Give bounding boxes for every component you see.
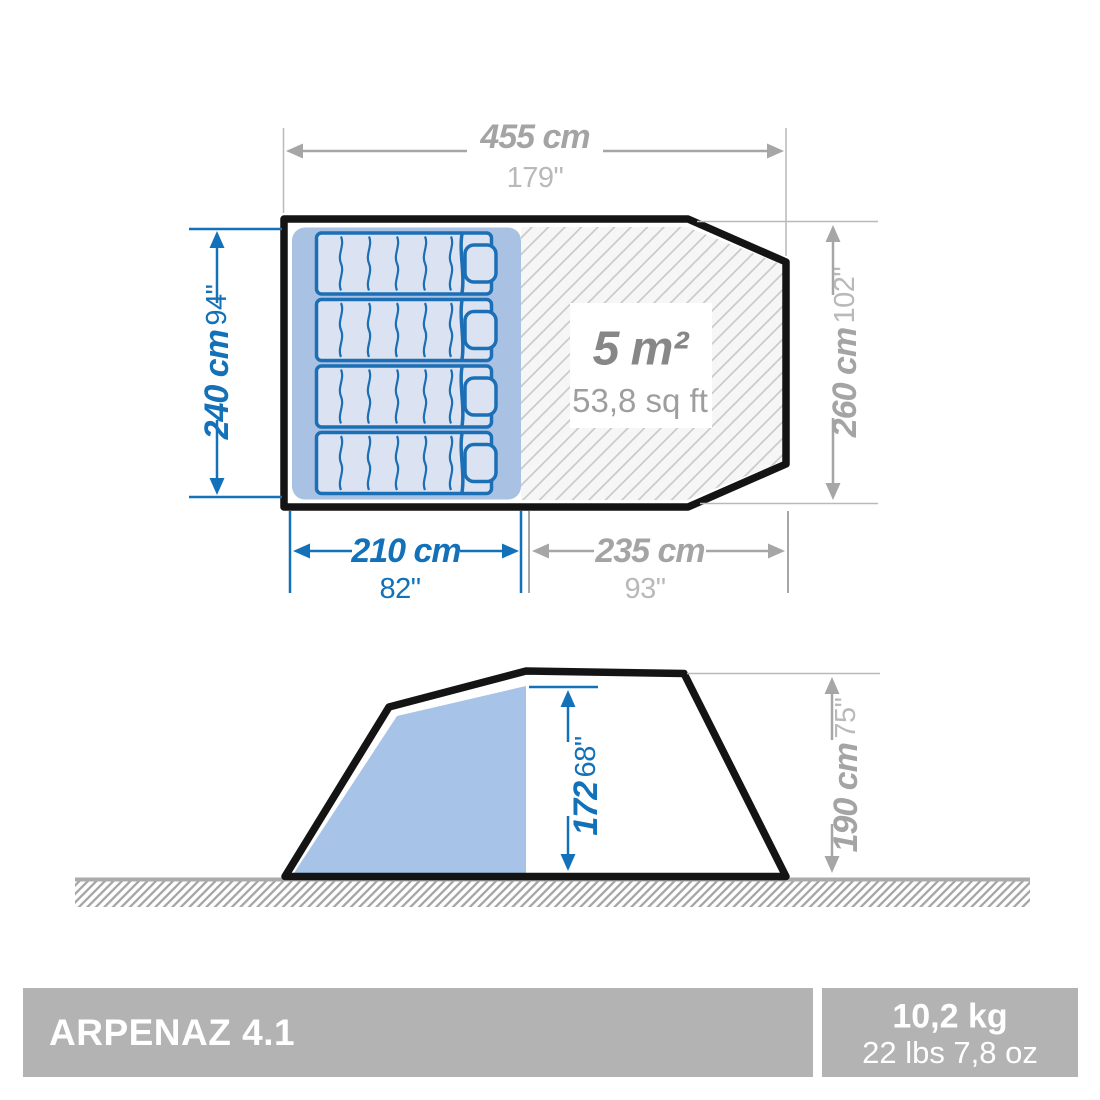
exterior-height-metric-label: 190 cm [828,743,864,852]
weight-lbs-label: 22 lbs 7,8 oz [862,1035,1038,1071]
mattress-2 [317,300,497,361]
interior-height-metric-label: 172 [568,782,604,836]
interior-height-imperial-label: 68" [570,736,602,777]
right-depth-imperial-label: 102" [829,267,861,324]
arrow-down-icon [210,478,225,495]
left-depth-label: 240 cm 94" [199,285,235,440]
weight-kg-label: 10,2 kg [892,998,1007,1037]
right-depth-metric-label: 260 cm [827,328,863,437]
living-width-imperial-label: 93" [624,573,665,605]
arrow-down-icon [826,483,841,500]
arrow-left-icon [532,544,549,559]
mattress-3 [317,366,497,427]
ground-hatch [75,882,1030,908]
arrow-left-icon [293,544,310,559]
arrow-up-icon [210,231,225,248]
exterior-height-label: 190 cm 75" [828,698,864,853]
model-name: ARPENAZ 4.1 [49,988,295,1077]
left-depth-imperial-label: 94" [201,285,233,326]
arrow-up-icon [826,225,841,242]
tent-dimensions-diagram: 455 cm 179" 240 cm 94" 260 cm 102" 210 c… [0,0,1100,1100]
exterior-height-imperial-label: 75" [830,698,862,739]
arrow-down-icon [825,856,840,873]
total-width-imperial-label: 179" [507,162,564,194]
arrow-up-icon [825,677,840,694]
right-depth-label: 260 cm 102" [827,267,863,437]
living-area-metric-label: 5 m² [593,322,688,377]
mattress-1 [317,233,497,294]
left-depth-metric-label: 240 cm [199,330,235,439]
side-sleeping-compartment [294,686,526,873]
living-area-imperial-label: 53,8 sq ft [572,382,708,420]
sleeping-width-metric-label: 210 cm [351,533,460,569]
total-width-metric-label: 455 cm [480,119,589,155]
interior-height-label: 172 68" [568,736,604,835]
mattress-4 [317,433,497,494]
arrow-right-icon [767,144,784,159]
living-width-metric-label: 235 cm [595,533,704,569]
arrow-right-icon [768,544,785,559]
arrow-right-icon [502,544,519,559]
arrow-left-icon [286,144,303,159]
sleeping-width-imperial-label: 82" [379,573,420,605]
